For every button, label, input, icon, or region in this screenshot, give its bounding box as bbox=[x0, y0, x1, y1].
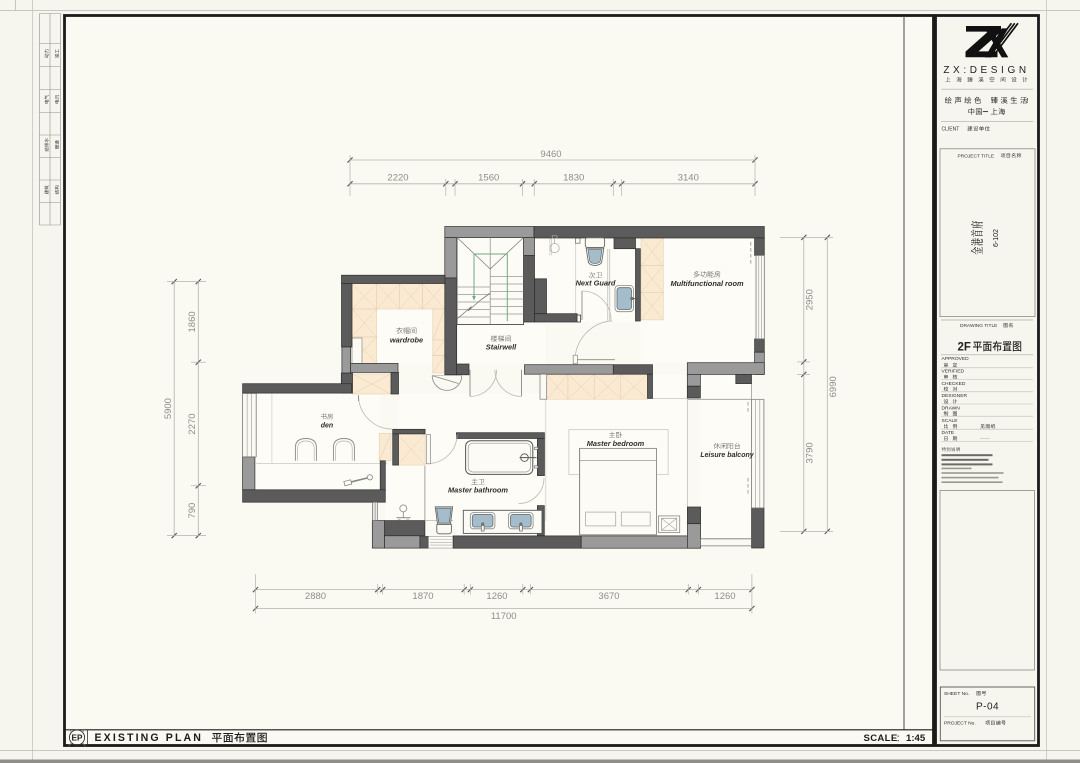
svg-text:Master bedroom: Master bedroom bbox=[587, 439, 645, 448]
svg-text:CLIENT: CLIENT bbox=[942, 127, 960, 133]
svg-text:9460: 9460 bbox=[540, 149, 561, 160]
svg-text:------: ------ bbox=[980, 437, 990, 442]
svg-text:2880: 2880 bbox=[305, 591, 326, 602]
svg-text:1860: 1860 bbox=[187, 311, 198, 332]
svg-text:P-04: P-04 bbox=[976, 701, 999, 712]
svg-text:Next Guard: Next Guard bbox=[576, 278, 616, 287]
svg-text:1260: 1260 bbox=[486, 591, 507, 602]
svg-text:PROJECT No.: PROJECT No. bbox=[944, 721, 976, 727]
svg-text:Leisure balcony: Leisure balcony bbox=[700, 452, 754, 459]
svg-text:1830: 1830 bbox=[563, 173, 584, 184]
svg-text:CHECKED: CHECKED bbox=[942, 381, 966, 387]
svg-text:2270: 2270 bbox=[187, 413, 198, 434]
svg-text:2F: 2F bbox=[958, 342, 971, 354]
svg-text:EXISTING PLAN: EXISTING PLAN bbox=[95, 732, 204, 744]
svg-text:APPROVED: APPROVED bbox=[942, 356, 970, 362]
svg-text:1870: 1870 bbox=[412, 591, 433, 602]
svg-text:2950: 2950 bbox=[805, 289, 816, 310]
svg-text:790: 790 bbox=[187, 503, 198, 519]
svg-text:3140: 3140 bbox=[678, 173, 699, 184]
svg-text:6990: 6990 bbox=[828, 376, 839, 397]
svg-text:PROJECT TITLE: PROJECT TITLE bbox=[958, 153, 995, 159]
svg-text:EP: EP bbox=[72, 734, 83, 743]
svg-text:Stairwell: Stairwell bbox=[486, 342, 517, 351]
svg-text:DRAWING TITLE: DRAWING TITLE bbox=[960, 323, 997, 329]
svg-text:5900: 5900 bbox=[163, 398, 174, 419]
svg-text:DRAWN: DRAWN bbox=[942, 405, 961, 411]
svg-text:SCALE: SCALE bbox=[942, 418, 959, 424]
svg-text:1:45: 1:45 bbox=[906, 733, 926, 744]
svg-text:ZX:DESIGN: ZX:DESIGN bbox=[943, 65, 1029, 76]
svg-text:3790: 3790 bbox=[805, 442, 816, 463]
svg-text:SHEET No.: SHEET No. bbox=[944, 691, 969, 697]
svg-text:3670: 3670 bbox=[598, 591, 619, 602]
svg-text:6-102: 6-102 bbox=[993, 229, 1000, 247]
svg-text:wardrobe: wardrobe bbox=[390, 335, 423, 344]
svg-text:1260: 1260 bbox=[714, 591, 735, 602]
svg-text:!: ! bbox=[1027, 96, 1029, 105]
svg-text:DESIGNER: DESIGNER bbox=[942, 393, 968, 399]
svg-text:den: den bbox=[321, 422, 333, 429]
svg-text:Multifunctional room: Multifunctional room bbox=[670, 279, 744, 288]
svg-text:Master bathroom: Master bathroom bbox=[448, 485, 508, 494]
svg-text:11700: 11700 bbox=[491, 611, 517, 622]
svg-text:DATE: DATE bbox=[942, 430, 955, 436]
svg-text:VERIFIED: VERIFIED bbox=[942, 368, 965, 374]
svg-text:1560: 1560 bbox=[478, 173, 499, 184]
svg-text:SCALE: SCALE bbox=[864, 733, 898, 744]
svg-text:2220: 2220 bbox=[387, 173, 408, 184]
svg-text:：: ： bbox=[896, 733, 905, 743]
